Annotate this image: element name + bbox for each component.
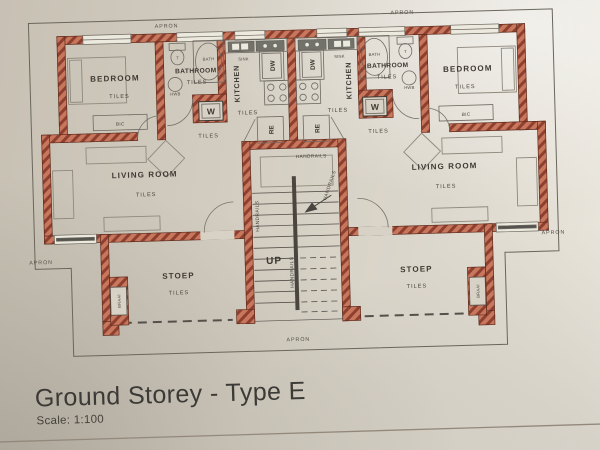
living-furniture-right bbox=[403, 130, 538, 223]
tiles-living-right: TILES bbox=[436, 184, 457, 191]
toilet-label-right: T bbox=[404, 49, 407, 54]
tiles-bathroom-right: TILES bbox=[377, 74, 398, 81]
dw-label-left: DW bbox=[270, 59, 277, 71]
handrails-label-top: HANDRAILS bbox=[296, 153, 327, 160]
title-block: Ground Storey - Type E Scale: 1:100 bbox=[34, 377, 306, 428]
kitchen-label-left: KITCHEN bbox=[232, 65, 242, 103]
window bbox=[496, 222, 538, 232]
drawing-title: Ground Storey - Type E bbox=[34, 377, 306, 413]
living-furniture-left bbox=[52, 140, 187, 233]
tiles-passage-left: TILES bbox=[198, 133, 219, 140]
washer-label-right: W bbox=[371, 102, 380, 112]
bedroom-label-left: BEDROOM bbox=[90, 73, 140, 83]
fridge-label-left: RE bbox=[268, 124, 275, 134]
tiles-living-left: TILES bbox=[136, 192, 157, 199]
toilet-right bbox=[397, 37, 414, 59]
bathroom-label-right: BATHROOM bbox=[367, 62, 409, 70]
bedroom-label-right: BEDROOM bbox=[443, 64, 493, 74]
bic-label-right: BIC bbox=[462, 112, 471, 117]
tiles-stoep-right: TILES bbox=[407, 283, 428, 290]
apron-label-left: APRON bbox=[29, 260, 53, 267]
fridge-label-right: RE bbox=[314, 123, 321, 133]
braai-label-left: BRAAI bbox=[117, 294, 122, 308]
tiles-bathroom-left: TILES bbox=[187, 80, 208, 87]
living-room-label-right: LIVING ROOM bbox=[412, 161, 478, 172]
kitchen-counter-right bbox=[295, 36, 357, 51]
stove-left bbox=[264, 80, 289, 105]
bath-label-left: BATH bbox=[203, 56, 215, 61]
hwb-label-right: HWB bbox=[404, 85, 415, 90]
up-label: UP bbox=[266, 256, 282, 267]
tiles-passage-right: TILES bbox=[368, 128, 389, 135]
apron-label-bottom: APRON bbox=[286, 337, 310, 344]
hwb-label-left: HWB bbox=[170, 91, 181, 96]
floor-plan-photo: APRON APRON APRON APRON APRON BEDROOM BE… bbox=[0, 0, 600, 450]
washer-label-left: W bbox=[207, 106, 216, 116]
stoep-label-right: STOEP bbox=[400, 264, 433, 274]
tiles-bedroom-right: TILES bbox=[455, 84, 476, 91]
apron-label-top-right: APRON bbox=[390, 10, 414, 17]
tiles-kitchen-right: TILES bbox=[328, 108, 349, 115]
toilet-label-left: T bbox=[176, 55, 179, 60]
bath-label-right: BATH bbox=[369, 52, 381, 57]
stove-right bbox=[296, 79, 321, 104]
living-room-label-left: LIVING ROOM bbox=[112, 169, 178, 180]
sink-label-left: SINK bbox=[238, 56, 249, 61]
basin-right bbox=[402, 71, 416, 85]
kitchen-label-right: KITCHEN bbox=[344, 62, 354, 100]
bic-label-left: BIC bbox=[116, 121, 125, 126]
window bbox=[83, 34, 131, 44]
dw-label-right: DW bbox=[309, 58, 316, 70]
apron-label-right: APRON bbox=[542, 230, 566, 237]
paper-edge-line bbox=[0, 424, 600, 442]
apron-label-top-left: APRON bbox=[155, 23, 179, 30]
toilet-left bbox=[169, 43, 186, 65]
braai-label-right: BRAAI bbox=[475, 284, 480, 298]
stoep-label-left: STOEP bbox=[162, 271, 195, 281]
window bbox=[359, 27, 405, 37]
tiles-stoep-left: TILES bbox=[169, 290, 190, 297]
window bbox=[54, 234, 96, 244]
window bbox=[451, 24, 499, 34]
drawing-scale: Scale: 1:100 bbox=[36, 414, 104, 428]
handrails-label-mid: HANDRAILS bbox=[289, 257, 296, 288]
tiles-kitchen-left: TILES bbox=[238, 110, 259, 117]
bathroom-label-left: BATHROOM bbox=[175, 67, 217, 75]
sink-label-right: SINK bbox=[334, 54, 345, 59]
basin-left bbox=[168, 77, 182, 91]
stair-stringer bbox=[292, 176, 300, 310]
plan-sheet: APRON APRON APRON APRON APRON BEDROOM BE… bbox=[22, 6, 570, 428]
tiles-bedroom-left: TILES bbox=[109, 94, 130, 101]
handrails-label-left: HANDRAILS bbox=[254, 201, 261, 232]
